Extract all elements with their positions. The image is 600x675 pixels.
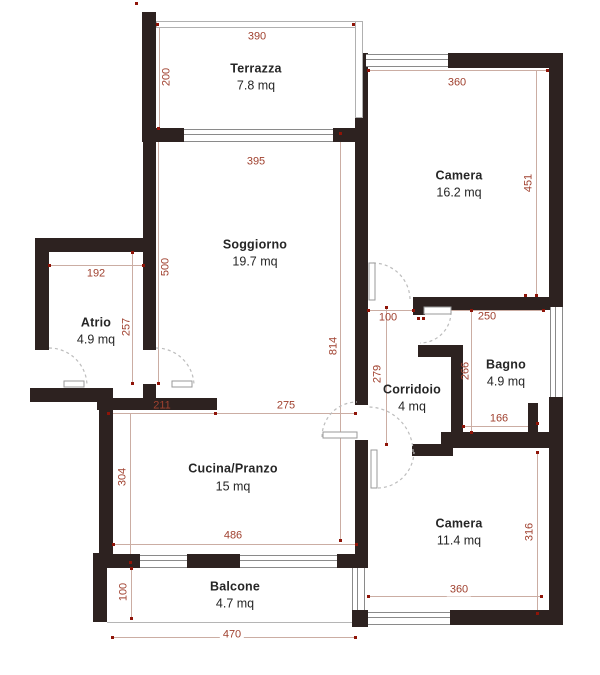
dim-bagno-bottom-width: 166 [490,413,508,426]
door-leaf-atrio-soggiorno [172,381,192,387]
dim-camera2-height: 316 [524,523,537,541]
dim-camera1-width: 360 [448,77,466,90]
room-area-terrazza: 7.8 mq [237,80,275,93]
dim-left-total-height: 814 [328,337,341,355]
room-label-terrazza: Terrazza [230,63,281,76]
door-arc-bagno [420,312,451,343]
dim-cucina-height: 304 [117,468,130,486]
door-leaf-bagno [424,307,451,314]
door-leaf-camera2 [371,450,377,488]
dim-camera1-height: 451 [523,174,536,192]
door-arc-atrio-entry [49,348,87,386]
dim-terrazza-width: 390 [248,31,266,44]
door-arc-corridoio [368,407,413,452]
dim-kitchen-open-span: 275 [277,400,295,413]
room-label-camera1: Camera [435,170,482,183]
room-area-cucina: 15 mq [216,481,251,494]
door-arc-atrio-soggiorno [156,348,194,386]
room-label-bagno: Bagno [486,359,526,372]
door-arc-camera1 [373,263,410,300]
room-label-corridoio: Corridoio [383,384,441,397]
door-arc-camera2 [378,452,414,488]
dim-corridoio-opening: 100 [379,312,397,325]
door-leaf-atrio-entry [64,381,84,387]
room-area-camera1: 16.2 mq [436,187,481,200]
room-label-balcone: Balcone [210,581,260,594]
dim-balcone-width: 470 [220,629,244,642]
door-leaf-camera1 [369,263,375,300]
dim-camera2-width: 360 [447,584,471,597]
dim-corridoio-height: 279 [372,365,385,383]
room-area-corridoio: 4 mq [398,401,426,414]
room-area-bagno: 4.9 mq [487,376,525,389]
dim-soggiorno-width: 395 [247,156,265,169]
dim-bagno-height: 266 [460,362,473,380]
dim-bagno-top-width: 250 [478,311,496,324]
dim-atrio-height: 257 [121,318,134,336]
room-label-camera2: Camera [435,518,482,531]
dim-kitchen-wall-left: 211 [153,400,171,413]
room-area-balcone: 4.7 mq [216,598,254,611]
room-area-camera2: 11.4 mq [437,535,481,548]
room-label-atrio: Atrio [81,317,111,330]
dim-soggiorno-height: 500 [160,258,173,276]
floor-plan: Terrazza 7.8 mq Camera 16.2 mq Soggiorno… [0,0,600,675]
door-leaf-cucina [323,432,357,438]
room-area-atrio: 4.9 mq [77,334,115,347]
room-label-soggiorno: Soggiorno [223,239,287,252]
dim-cucina-width: 486 [224,530,242,543]
dim-atrio-width: 192 [87,268,105,281]
room-area-soggiorno: 19.7 mq [232,256,277,269]
dim-balcone-depth: 100 [118,583,131,601]
room-label-cucina: Cucina/Pranzo [188,463,277,476]
dim-terrazza-depth: 200 [161,68,174,86]
